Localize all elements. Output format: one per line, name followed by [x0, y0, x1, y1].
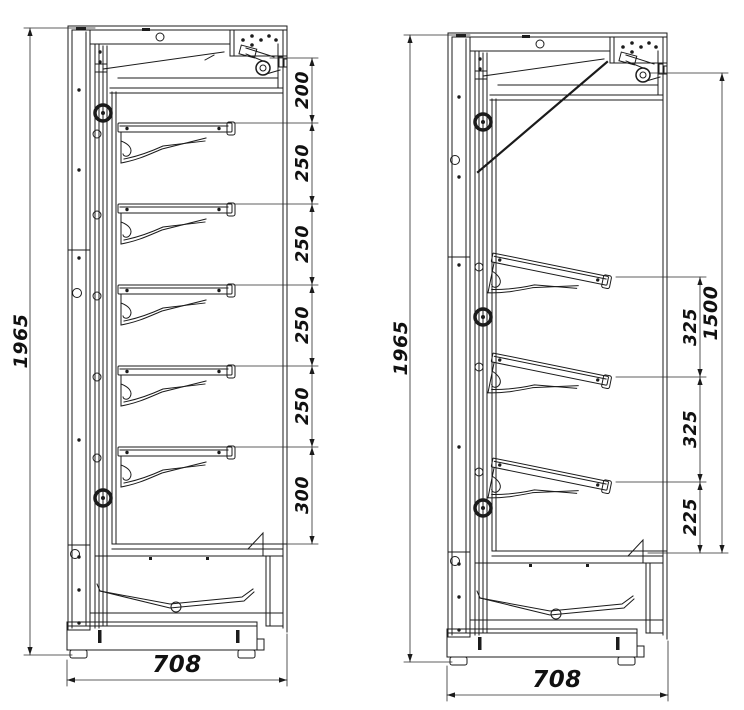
dim-left-overall-height: 1965 [10, 296, 32, 386]
canopy-hole [536, 40, 544, 48]
dim-right-spacing-3: 225 [680, 472, 702, 562]
dim-right-overall-width: 708 [517, 669, 597, 691]
roller-mechanism [239, 45, 287, 75]
night-blind-line [478, 62, 607, 172]
right-base [447, 540, 667, 665]
dim-left-spacing-5: 250 [292, 361, 314, 451]
dim-right-overall-height: 1965 [390, 303, 412, 393]
dim-left-spacing-4: 250 [292, 280, 314, 370]
dimension-lines [24, 28, 728, 701]
left-base [67, 533, 287, 658]
left-cabinet-drawing [67, 26, 287, 658]
dim-right-spacing-2: 325 [680, 384, 702, 474]
dim-left-spacing-2: 250 [292, 118, 314, 208]
dim-left-spacing-3: 250 [292, 199, 314, 289]
dim-right-display-zone-height: 1500 [700, 268, 722, 358]
canopy-duct-line [103, 52, 224, 69]
canopy-hole [156, 33, 164, 41]
left-shelves [93, 122, 235, 487]
technical-drawing-canvas: 1965 200 250 250 250 250 300 708 1965 32… [0, 0, 744, 710]
cabinet-line-art [0, 0, 744, 710]
dim-left-spacing-6: 300 [292, 450, 314, 540]
canopy-duct-line [483, 59, 604, 76]
dim-left-overall-width: 708 [137, 654, 217, 676]
dim-right-spacing-1: 325 [680, 282, 702, 372]
right-cabinet-drawing [447, 33, 667, 665]
roller-mechanism [619, 52, 667, 82]
